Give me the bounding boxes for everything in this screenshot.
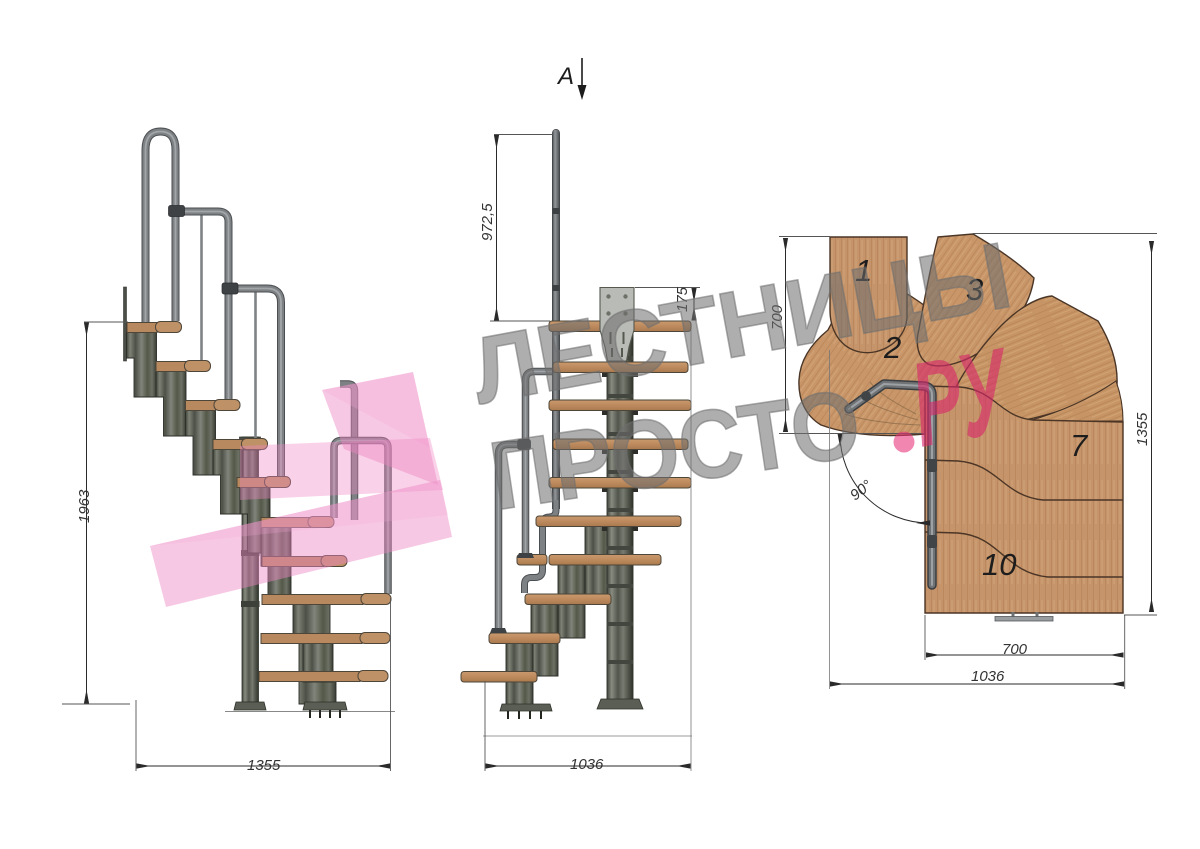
svg-text:10: 10 <box>982 547 1016 582</box>
svg-text:972,5: 972,5 <box>479 203 496 241</box>
svg-text:1355: 1355 <box>247 757 281 774</box>
svg-text:1036: 1036 <box>570 756 604 773</box>
svg-text:1036: 1036 <box>971 668 1005 685</box>
svg-text:A: A <box>556 63 574 90</box>
svg-text:7: 7 <box>1070 428 1089 463</box>
svg-text:1963: 1963 <box>76 489 93 523</box>
svg-text:1355: 1355 <box>1134 412 1151 446</box>
svg-text:700: 700 <box>1002 641 1028 658</box>
